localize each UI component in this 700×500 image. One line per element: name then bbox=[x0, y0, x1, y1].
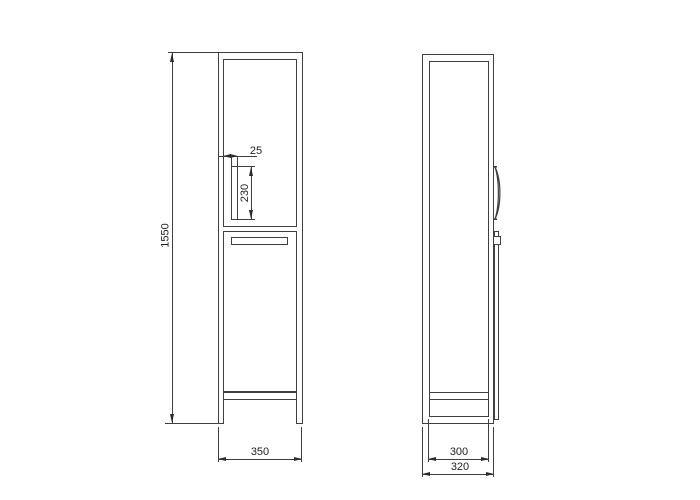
dim-body-depth-label: 300 bbox=[443, 446, 475, 458]
side-drawer-handle-profile bbox=[493, 236, 501, 245]
side-bottom-rail-bottom-line bbox=[429, 399, 489, 400]
dim-body-depth-arrow-left bbox=[428, 457, 436, 461]
dim-overall-depth-label: 320 bbox=[444, 461, 476, 473]
dim-overall-depth-line bbox=[422, 474, 494, 475]
dim-overall-depth-extension-right bbox=[493, 427, 494, 477]
side-bottom-rail-top-line bbox=[429, 392, 489, 393]
side-lower-front-profile bbox=[494, 231, 499, 420]
dim-body-depth-arrow-right bbox=[481, 457, 489, 461]
dim-body-depth-extension-right bbox=[488, 419, 489, 462]
dim-overall-depth-arrow-left bbox=[422, 472, 430, 476]
side-view: 300 320 bbox=[0, 0, 700, 500]
handle-arc-path bbox=[495, 167, 500, 219]
dim-overall-depth-extension-left bbox=[422, 427, 423, 477]
drawing-canvas: 1550 25 230 350 bbox=[0, 0, 700, 500]
side-inner-panel bbox=[429, 61, 489, 417]
dim-overall-depth-arrow-right bbox=[486, 472, 494, 476]
side-door-handle-arc bbox=[492, 162, 506, 224]
dim-body-depth-line bbox=[428, 459, 489, 460]
dim-body-depth-extension-left bbox=[428, 419, 429, 462]
